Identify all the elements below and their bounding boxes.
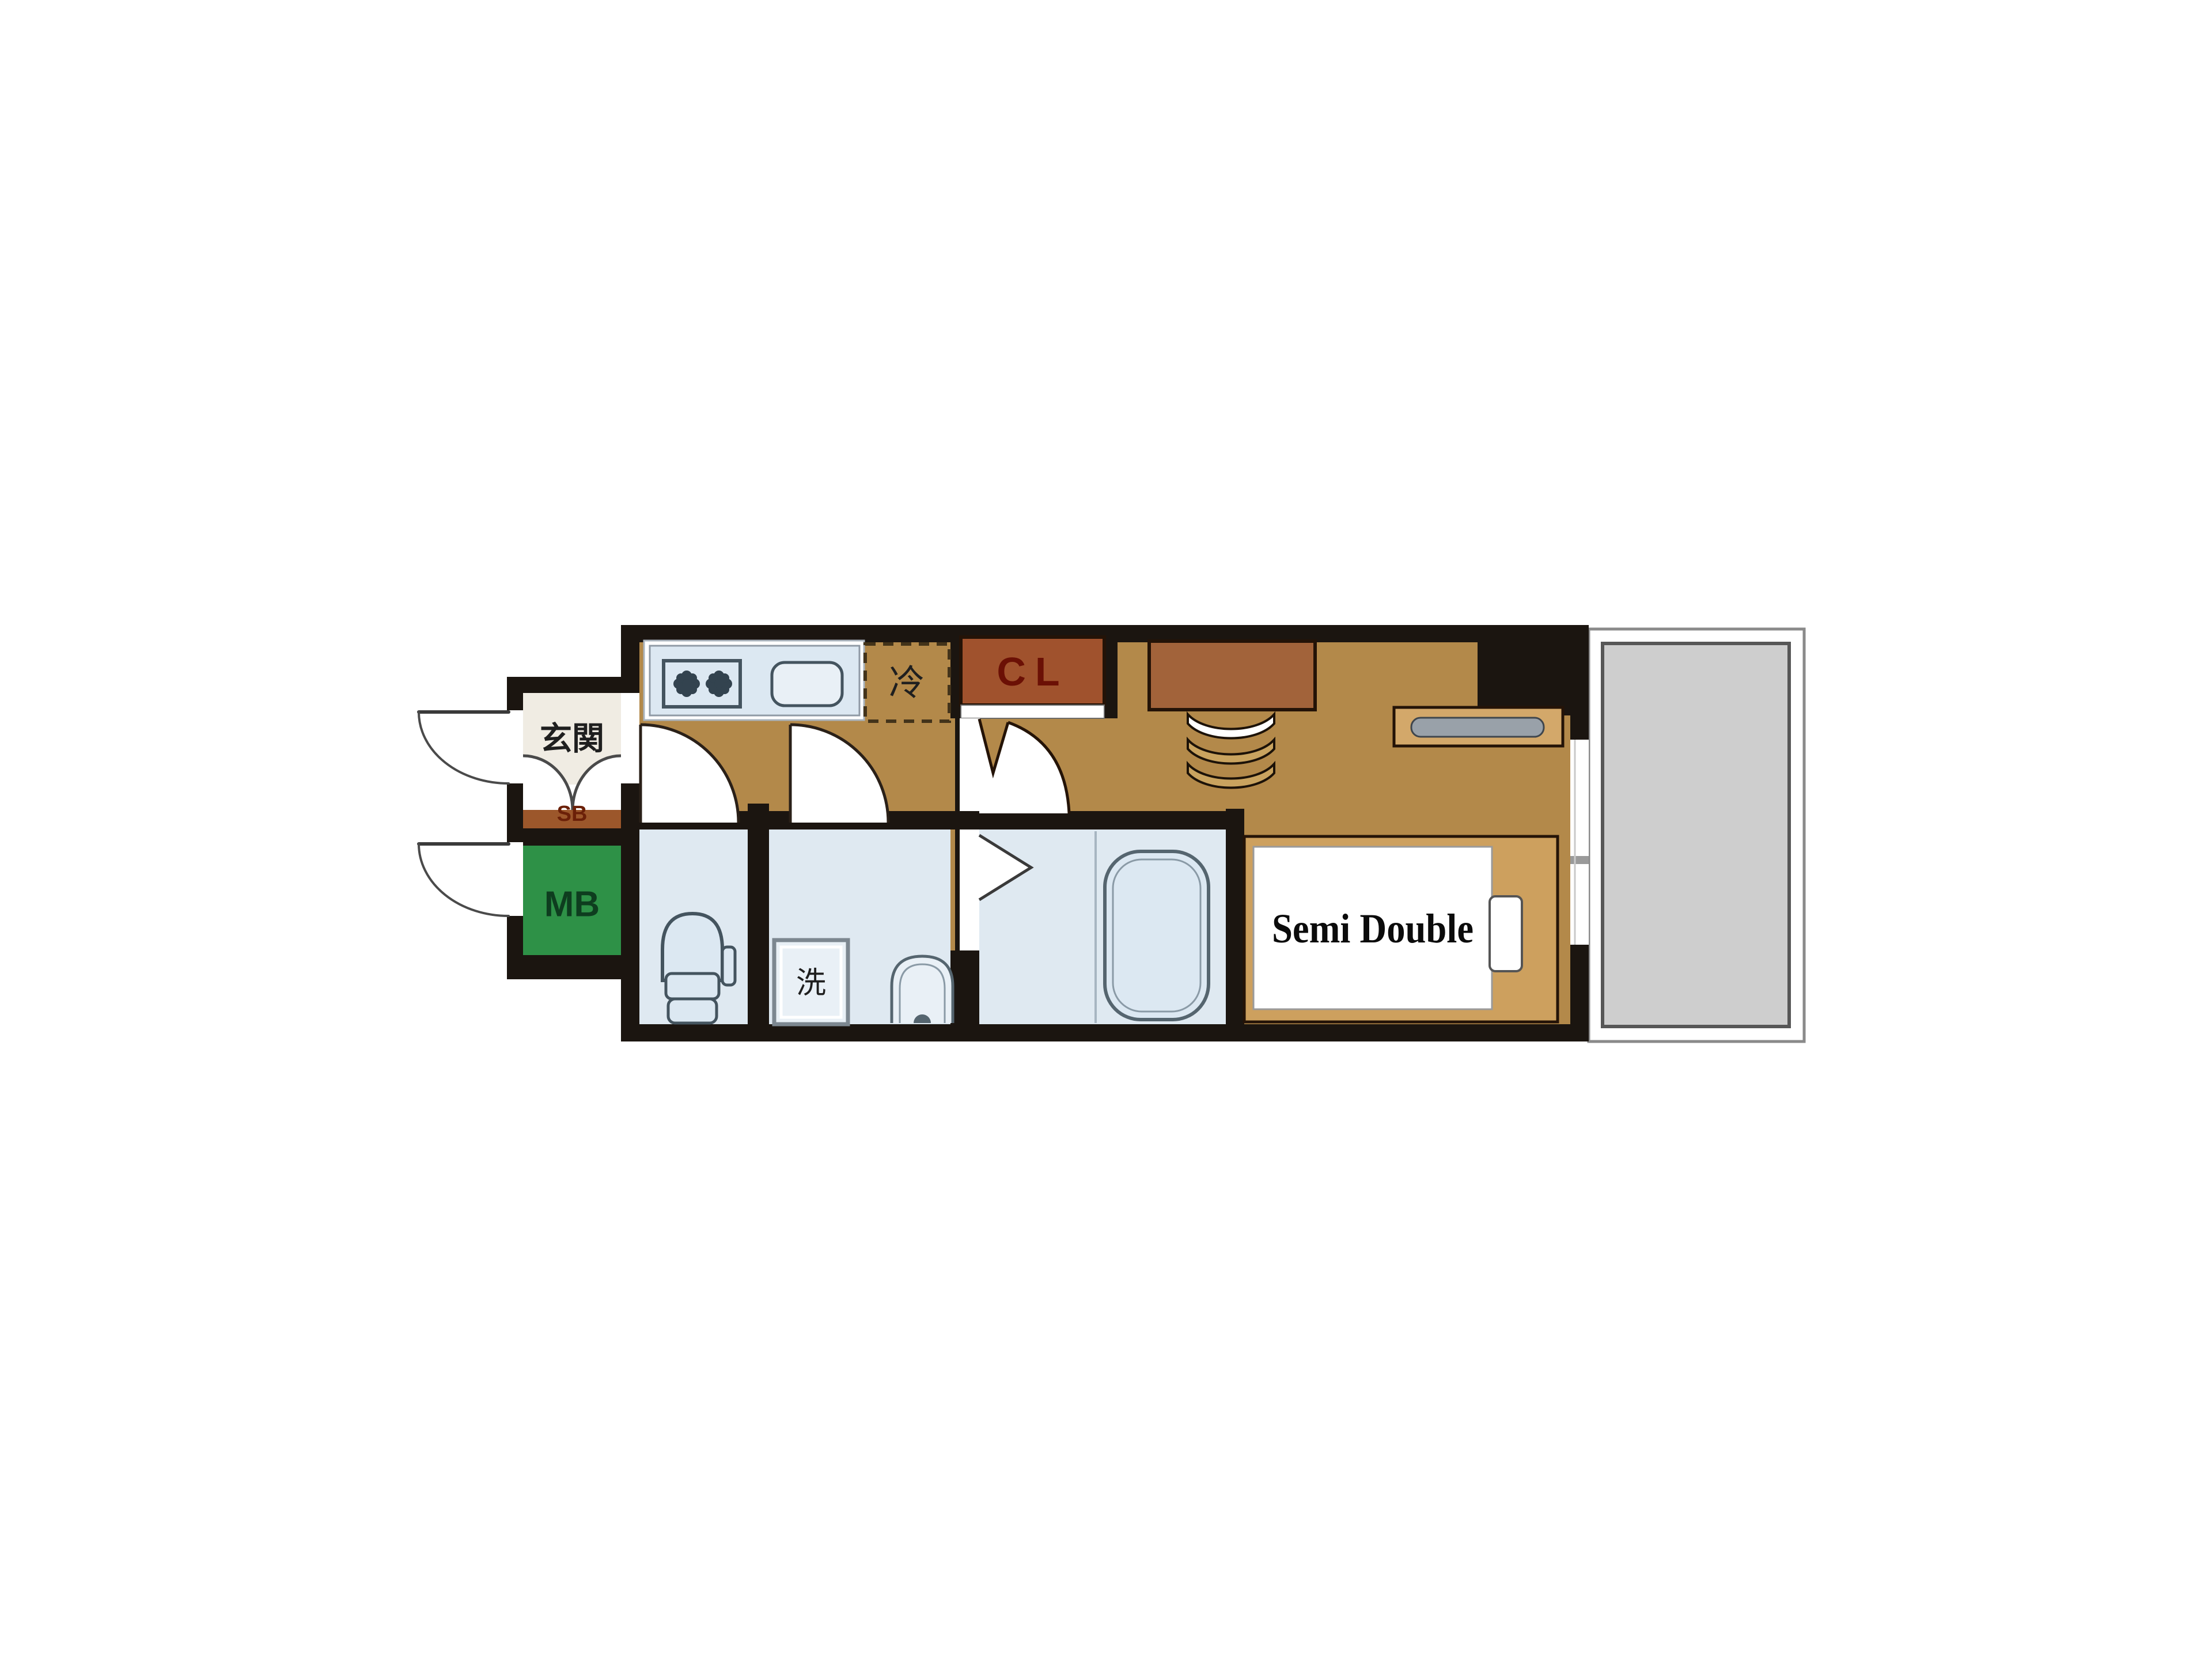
washbasin-icon bbox=[892, 956, 953, 1023]
closet: CL bbox=[961, 637, 1104, 718]
shoe-box-label: SB bbox=[557, 802, 588, 826]
wall-toilet-washroom bbox=[748, 804, 769, 1041]
side-counter-handle bbox=[1411, 718, 1544, 737]
toilet-tank-handle bbox=[722, 947, 735, 985]
balcony bbox=[1589, 629, 1804, 1041]
bath-doorway-edge bbox=[955, 829, 960, 950]
meter-box-door-opening bbox=[507, 842, 523, 916]
corridor-strip bbox=[960, 718, 980, 811]
bed-pillow bbox=[1490, 896, 1522, 971]
exterior-door-swings bbox=[419, 712, 509, 916]
corridor-edge-line bbox=[955, 718, 960, 811]
toilet-seat bbox=[666, 974, 719, 999]
wall-washroom-bath-stub bbox=[950, 950, 979, 1041]
entrance-hall-opening bbox=[621, 693, 639, 783]
toilet-base bbox=[668, 999, 717, 1023]
balcony-deck bbox=[1603, 643, 1789, 1027]
window-opening bbox=[1570, 740, 1589, 945]
bed: Semi Double bbox=[1244, 836, 1558, 1022]
side-counter bbox=[1394, 707, 1563, 746]
kitchen-sink bbox=[772, 662, 842, 706]
entrance-door-opening bbox=[507, 710, 523, 783]
meter-box-label: MB bbox=[544, 885, 600, 925]
washing-machine-label: 洗 bbox=[796, 967, 826, 1000]
desk bbox=[1149, 641, 1315, 710]
balcony-window bbox=[1570, 740, 1589, 945]
bathtub-icon bbox=[1105, 851, 1209, 1020]
floor-plan: 冷 CL Semi Double 洗 bbox=[0, 0, 2212, 1659]
closet-label: CL bbox=[997, 649, 1069, 694]
wall-bath-east bbox=[1226, 809, 1244, 1041]
wall-closet-right-stub bbox=[1104, 625, 1118, 718]
closet-sliding-door bbox=[961, 705, 1104, 718]
bed-label: Semi Double bbox=[1272, 906, 1474, 952]
toilet-bowl-icon bbox=[662, 914, 722, 980]
meter-box-door-swing-arc bbox=[419, 844, 509, 916]
floor-plan-canvas: 冷 CL Semi Double 洗 bbox=[0, 0, 2212, 1659]
window-center-divider bbox=[1570, 856, 1589, 864]
entrance-label: 玄関 bbox=[540, 721, 604, 757]
kitchen bbox=[644, 641, 864, 720]
bath-doorway-strip bbox=[960, 829, 979, 950]
refrigerator-label: 冷 bbox=[889, 664, 925, 703]
entrance-door-swing-arc bbox=[419, 712, 509, 783]
